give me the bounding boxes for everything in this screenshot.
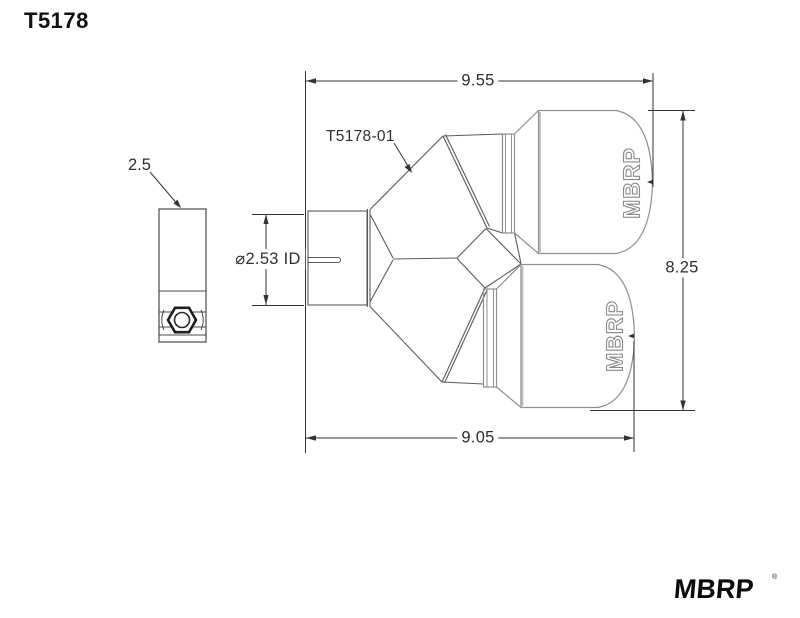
page-title: T5178 [24, 8, 89, 34]
dim-clamp-width: 2.5 [128, 156, 151, 175]
upper-tip-engraving: MBRP [619, 147, 646, 219]
junction-diamond [457, 229, 521, 289]
lower-tip-engraving: MBRP [602, 300, 629, 372]
lower-tip-band [484, 289, 497, 387]
drawing-sheet: T5178 T5178-01 2.5 9.55 9.05 8.25 ⌀2.53 … [0, 0, 800, 618]
exhaust-tip-line-drawing [0, 0, 800, 618]
dim-overall-height: 8.25 [661, 259, 702, 278]
dim-inlet-id: ⌀2.53 ID [231, 249, 305, 269]
leader-clamp [150, 172, 179, 206]
inlet-flare [368, 209, 371, 307]
part-number-callout: T5178-01 [326, 128, 395, 146]
mbrp-logo: MBRP [673, 574, 755, 605]
upper-tip-band [503, 134, 515, 233]
y-pipe-body [308, 134, 521, 384]
clamp-nut-hex [168, 308, 196, 332]
trademark-symbol: ® [772, 574, 777, 581]
upper-tip-cone [515, 111, 539, 254]
inlet-slot [308, 258, 341, 263]
lower-tip-cone [497, 265, 522, 408]
clamp-side-view [159, 209, 206, 342]
dim-top-width: 9.55 [457, 72, 498, 91]
dim-bottom-width: 9.05 [457, 429, 498, 448]
